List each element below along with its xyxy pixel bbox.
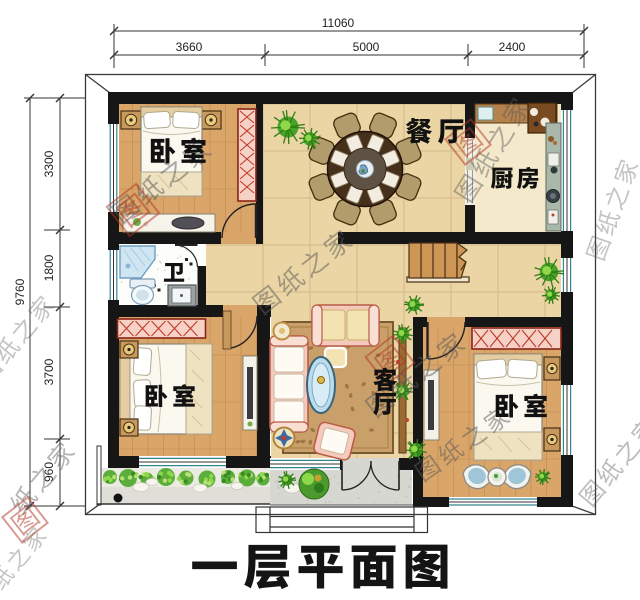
svg-text:2400: 2400: [499, 40, 526, 54]
svg-text:9760: 9760: [13, 278, 27, 305]
svg-text:3700: 3700: [42, 358, 56, 385]
svg-text:3300: 3300: [42, 150, 56, 177]
svg-text:11060: 11060: [322, 16, 355, 30]
svg-text:5000: 5000: [353, 40, 380, 54]
svg-text:3660: 3660: [176, 40, 203, 54]
svg-text:1800: 1800: [42, 254, 56, 281]
